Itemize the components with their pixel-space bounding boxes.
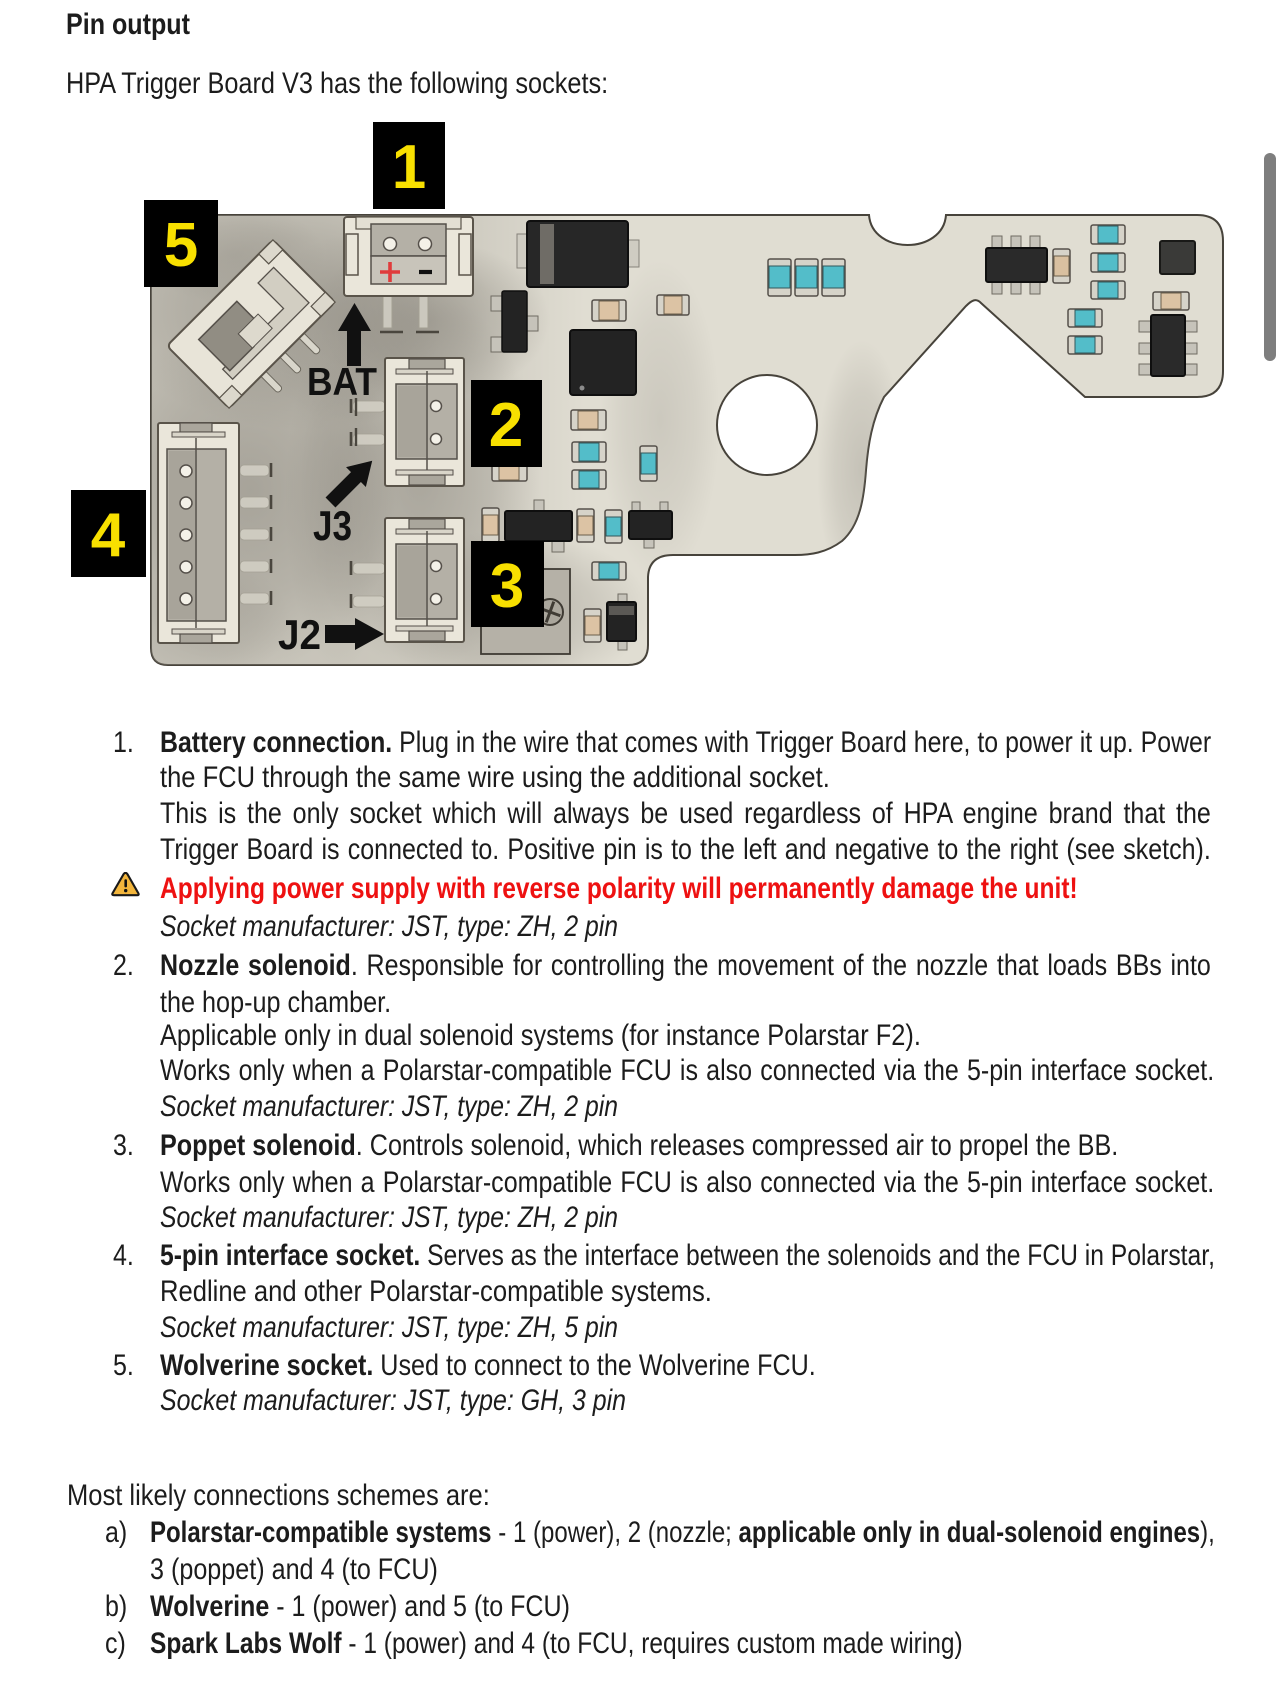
svg-text:J2: J2 — [278, 611, 321, 658]
svg-text:BAT: BAT — [307, 361, 377, 404]
svg-text:3: 3 — [490, 552, 524, 621]
svg-text:2: 2 — [489, 391, 523, 460]
svg-text:4: 4 — [91, 501, 126, 570]
svg-text:5: 5 — [164, 211, 198, 280]
svg-text:1: 1 — [392, 133, 426, 202]
svg-text:J3: J3 — [313, 502, 352, 549]
